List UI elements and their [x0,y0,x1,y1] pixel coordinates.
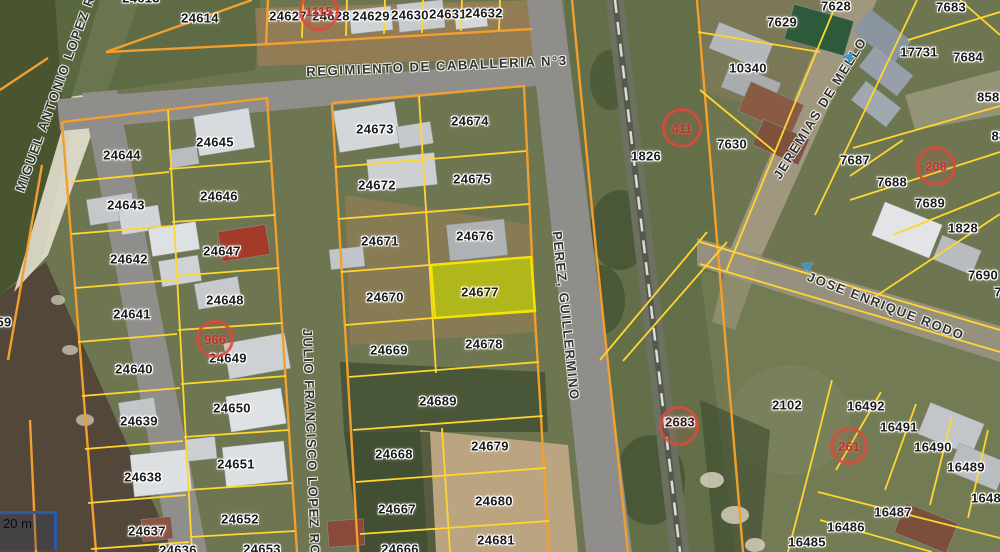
poi-marker-411[interactable]: 411 [662,108,702,148]
parcel-label-24643[interactable]: 24643 [107,198,145,213]
parcel-label-24650[interactable]: 24650 [213,401,251,416]
parcel-label-24676[interactable]: 24676 [456,229,494,244]
parcel-label-1828[interactable]: 1828 [948,221,978,236]
parcel-label-7689[interactable]: 7689 [915,196,945,211]
parcel-label-16492[interactable]: 16492 [847,399,885,414]
parcel-label-16487[interactable]: 16487 [874,505,912,520]
parcel-label-24646[interactable]: 24646 [200,189,238,204]
parcel-label-1648[interactable]: 1648 [971,491,1000,506]
parcel-label-24636[interactable]: 24636 [159,543,197,552]
parcel-label-2102[interactable]: 2102 [772,398,802,413]
parcel-label-16489[interactable]: 16489 [947,460,985,475]
parcel-label-24670[interactable]: 24670 [366,290,404,305]
parcel-label-24613[interactable]: 24613 [122,0,160,6]
parcel-label-24632[interactable]: 24632 [465,6,503,21]
parcel-label-16486[interactable]: 16486 [827,520,865,535]
poi-marker-261[interactable]: 261 [830,427,868,465]
scale-bar: 20 m [0,511,57,550]
parcel-label-24667[interactable]: 24667 [378,502,416,517]
parcel-label-16490[interactable]: 16490 [914,440,952,455]
parcel-label-24630[interactable]: 24630 [391,8,429,23]
parcel-label-7687[interactable]: 7687 [840,153,870,168]
map-canvas[interactable]: 2461324614246272462824629246302463124632… [0,0,1000,552]
parcel-label-24666[interactable]: 24666 [381,542,419,552]
parcel-label-24652[interactable]: 24652 [221,512,259,527]
parcel-label-24689[interactable]: 24689 [419,394,457,409]
parcel-label-24647[interactable]: 24647 [203,244,241,259]
parcel-label-24677[interactable]: 24677 [461,285,499,300]
parcel-label-24629[interactable]: 24629 [352,9,390,24]
parcel-label-24674[interactable]: 24674 [451,114,489,129]
parcel-label-24638[interactable]: 24638 [124,470,162,485]
parcel-label-10340[interactable]: 10340 [729,61,767,76]
parcel-label-7[interactable]: 7 [994,285,1000,300]
parcel-label-16491[interactable]: 16491 [880,420,918,435]
parcel-label-7690[interactable]: 7690 [968,268,998,283]
parcel-label-24678[interactable]: 24678 [465,337,503,352]
parcel-label-24671[interactable]: 24671 [361,234,399,249]
parcel-label-24669[interactable]: 24669 [370,343,408,358]
parcel-label-24639[interactable]: 24639 [120,414,158,429]
parcel-label-88[interactable]: 88 [991,129,1000,144]
parcel-label-7629[interactable]: 7629 [767,15,797,30]
parcel-label-17731[interactable]: 17731 [900,45,938,60]
parcel-label-1826[interactable]: 1826 [631,149,661,164]
parcel-label-24631[interactable]: 24631 [429,7,467,22]
parcel-label-24614[interactable]: 24614 [181,11,219,26]
parcel-label-24648[interactable]: 24648 [206,293,244,308]
parcel-label-24644[interactable]: 24644 [103,148,141,163]
poi-marker-2683[interactable] [659,406,699,446]
parcel-label-24651[interactable]: 24651 [217,457,255,472]
parcel-label-24680[interactable]: 24680 [475,494,513,509]
parcel-label-24668[interactable]: 24668 [375,447,413,462]
parcel-label-24673[interactable]: 24673 [356,122,394,137]
parcel-label-7684[interactable]: 7684 [953,50,983,65]
parcel-label-24640[interactable]: 24640 [115,362,153,377]
parcel-label-24641[interactable]: 24641 [113,307,151,322]
parcel-label-24637[interactable]: 24637 [128,524,166,539]
parcel-label-7683[interactable]: 7683 [936,0,966,15]
poi-marker-208[interactable]: 208 [916,146,956,186]
parcel-label-24672[interactable]: 24672 [358,178,396,193]
parcel-label-7628[interactable]: 7628 [821,0,851,14]
parcel-label-24675[interactable]: 24675 [453,172,491,187]
parcel-label-24653[interactable]: 24653 [243,542,281,552]
parcel-label-24681[interactable]: 24681 [477,533,515,548]
parcel-label-24642[interactable]: 24642 [110,252,148,267]
parcel-label-59[interactable]: 59 [0,315,12,330]
poi-marker-966[interactable]: 966 [196,320,234,358]
parcel-label-24679[interactable]: 24679 [471,439,509,454]
parcel-label-24645[interactable]: 24645 [196,135,234,150]
parcel-label-8582[interactable]: 8582 [977,90,1000,105]
parcel-label-7688[interactable]: 7688 [877,175,907,190]
scale-bar-label: 20 m [3,516,32,531]
parcel-label-7630[interactable]: 7630 [717,137,747,152]
parcel-label-16485[interactable]: 16485 [788,535,826,550]
